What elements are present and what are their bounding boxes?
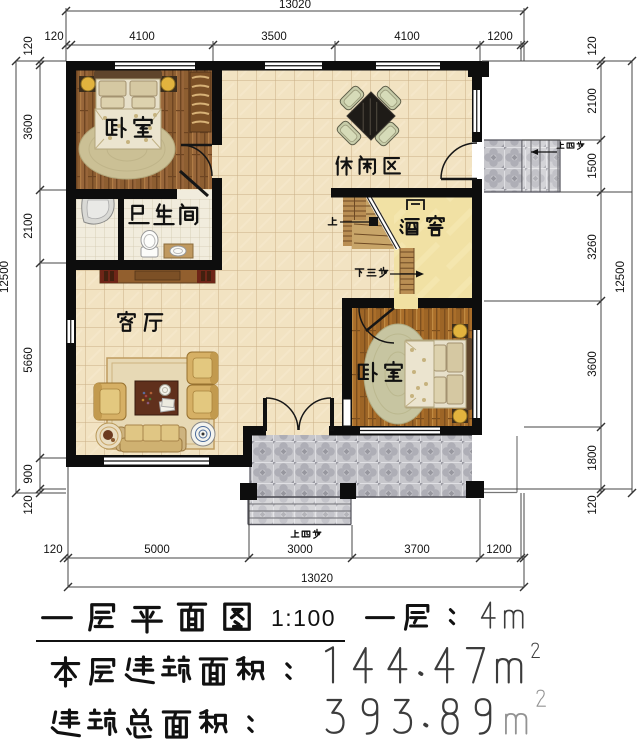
svg-text:1800: 1800	[587, 445, 599, 471]
svg-text:3000: 3000	[287, 544, 313, 556]
svg-text:1200: 1200	[486, 544, 512, 556]
svg-text:3700: 3700	[404, 544, 430, 556]
svg-text:12500: 12500	[0, 261, 11, 293]
svg-text:3260: 3260	[587, 234, 599, 260]
svg-text:120: 120	[587, 36, 599, 55]
svg-text:120: 120	[43, 544, 62, 556]
svg-text:13020: 13020	[301, 573, 333, 585]
svg-text:3500: 3500	[261, 31, 287, 43]
svg-text:1200: 1200	[487, 31, 513, 43]
svg-text:120: 120	[587, 495, 599, 514]
svg-text:5000: 5000	[144, 544, 170, 556]
svg-text:120: 120	[23, 36, 35, 55]
svg-text:3600: 3600	[587, 351, 599, 377]
svg-text:2100: 2100	[587, 88, 599, 114]
svg-text:1:100: 1:100	[271, 605, 336, 631]
svg-text:3600: 3600	[23, 114, 35, 140]
svg-text:120: 120	[44, 31, 63, 43]
svg-text:120: 120	[23, 495, 35, 514]
svg-text:4100: 4100	[129, 31, 155, 43]
svg-text:1500: 1500	[587, 153, 599, 179]
svg-text:4100: 4100	[394, 31, 420, 43]
svg-text:13020: 13020	[279, 0, 311, 11]
svg-text:900: 900	[23, 464, 35, 483]
svg-text:12500: 12500	[615, 261, 627, 293]
svg-text:5660: 5660	[23, 347, 35, 373]
svg-text:2100: 2100	[23, 213, 35, 239]
